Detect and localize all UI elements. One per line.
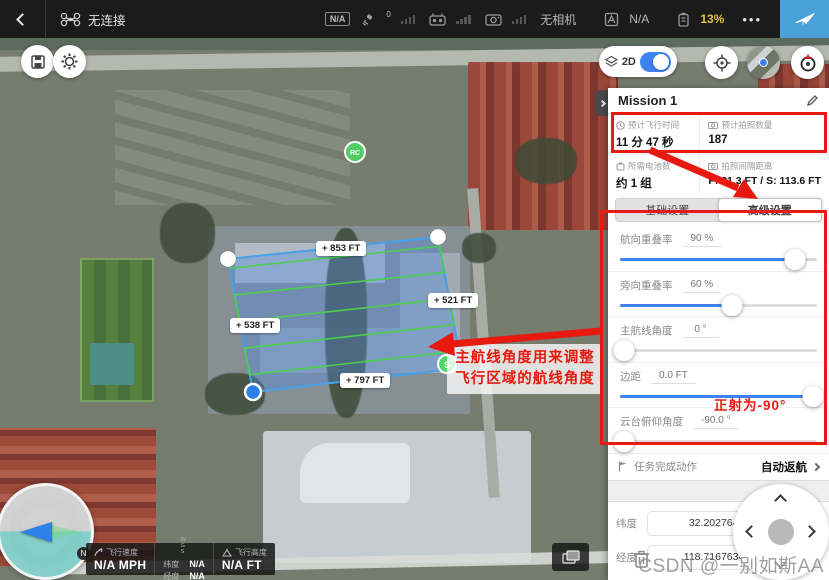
map-trees — [462, 233, 496, 263]
slider-thumb[interactable] — [785, 249, 806, 270]
battery-percentage: 13% — [700, 12, 724, 26]
stat-value: F: 21.3 FT / S: 113.6 FT — [708, 175, 821, 187]
slider-track[interactable] — [620, 440, 817, 443]
chevron-right-icon — [598, 99, 605, 106]
slider-fill — [620, 304, 732, 307]
save-mission-button[interactable] — [21, 45, 54, 78]
layers-icon — [605, 55, 618, 69]
map-2d-toggle[interactable] — [640, 52, 671, 72]
satellite-signal-bars — [401, 15, 416, 24]
battery-icon — [616, 162, 625, 171]
telemetry-coordinates: WGS 纬度N/A 经度N/A — [154, 543, 213, 575]
annotation-gimbal-note: 正射为-90° — [714, 394, 786, 414]
gps-signal-badge: N/A — [325, 12, 351, 26]
map-mode-pill: 2D — [599, 46, 677, 77]
finish-action-row[interactable]: 任务完成动作 自动返航 — [608, 454, 829, 480]
slider-track[interactable] — [620, 349, 817, 352]
map-buildings — [115, 90, 350, 205]
map-mode-label: 2D — [622, 56, 636, 68]
altitude-icon — [222, 548, 232, 557]
tab-basic-settings[interactable]: 基础设置 — [616, 199, 719, 221]
telemetry-altitude: 飞行高度 N/A FT — [213, 543, 275, 575]
setting-label: 边距 — [620, 369, 641, 384]
nudge-left-button[interactable] — [745, 525, 758, 538]
map-orientation-button[interactable] — [791, 46, 824, 79]
battery-icon — [677, 12, 690, 27]
camera-icon — [708, 162, 718, 170]
setting-side-overlap: 旁向重叠率 60 % — [608, 272, 829, 318]
mission-title: Mission 1 — [618, 93, 677, 108]
setting-label: 云台俯仰角度 — [620, 414, 683, 429]
tab-advanced-settings[interactable]: 高级设置 — [718, 198, 823, 222]
course-angle-slider[interactable] — [620, 340, 817, 361]
latitude-value: N/A — [189, 559, 205, 569]
map-trees — [205, 373, 265, 415]
airplane-icon — [794, 8, 816, 30]
chevron-left-icon — [16, 13, 29, 26]
stat-battery-count: 所需电池数 约 1 组 — [608, 154, 699, 195]
watermark: CSDN @一别如斯AA — [638, 551, 824, 578]
altitude-label: 飞行高度 — [235, 547, 267, 558]
stat-flight-time: 预计飞行时间 11 分 47 秒 — [608, 114, 699, 154]
annotation-note: 主航线角度用来调整 飞行区域的航线角度 — [447, 344, 603, 394]
mission-stats: 预计飞行时间 11 分 47 秒 预计拍照数量 187 所需电池数 约 1 组 — [608, 114, 829, 195]
finish-action-value: 自动返航 — [761, 459, 807, 475]
edit-pencil-icon[interactable] — [806, 94, 819, 107]
connection-status-text: 无连接 — [88, 10, 126, 29]
save-icon — [30, 54, 46, 70]
slider-thumb[interactable] — [722, 295, 743, 316]
setting-value[interactable]: 0 ° — [683, 323, 719, 338]
setting-course-angle: 主航线角度 0 ° — [608, 317, 829, 363]
attitude-compass-widget[interactable]: N — [0, 483, 94, 580]
panel-collapse-handle[interactable] — [595, 90, 609, 116]
longitude-label: 经度 — [163, 571, 179, 580]
setting-label: 旁向重叠率 — [620, 278, 673, 293]
telemetry-speed: 飞行速度 N/A MPH — [86, 543, 154, 575]
mission-header: Mission 1 — [608, 88, 829, 114]
stat-value: 11 分 47 秒 — [616, 134, 691, 150]
slider-thumb[interactable] — [613, 431, 634, 452]
setting-label: 航向重叠率 — [620, 232, 673, 247]
remote-controller-icon — [429, 13, 446, 26]
wgs-label: WGS — [181, 537, 188, 555]
mission-settings-button[interactable] — [53, 45, 86, 78]
stat-label: 预计飞行时间 — [628, 119, 679, 131]
toggle-knob — [653, 54, 669, 70]
edge-distance-label: + 538 FT — [230, 318, 280, 333]
annotation-note-line2: 飞行区域的航线角度 — [455, 369, 595, 390]
latitude-field-label: 纬度 — [616, 516, 640, 531]
latitude-label: 纬度 — [163, 559, 179, 570]
setting-front-overlap: 航向重叠率 90 % — [608, 226, 829, 272]
stat-label: 拍照间隔距离 — [721, 160, 772, 172]
back-button[interactable] — [0, 0, 46, 38]
map-court — [90, 343, 134, 385]
altitude-value: N/A FT — [222, 558, 267, 572]
locate-button[interactable] — [705, 46, 738, 79]
setting-gimbal-pitch: 云台俯仰角度 -90.0 ° — [608, 408, 829, 454]
aircraft-heading-arrow — [20, 522, 52, 542]
camera-icon — [708, 121, 718, 129]
stat-photo-count: 预计拍照数量 187 — [699, 114, 829, 154]
top-status-bar: 无连接 N/A 0 — [0, 0, 829, 38]
gear-icon — [61, 53, 78, 70]
stat-label: 预计拍照数量 — [721, 119, 772, 131]
takeoff-button[interactable] — [780, 0, 829, 38]
nudge-up-button[interactable] — [774, 494, 787, 507]
satellite-icon — [360, 12, 376, 26]
nudge-center-button[interactable] — [768, 519, 794, 545]
setting-label: 主航线角度 — [620, 323, 673, 338]
edge-distance-label: + 521 FT — [428, 293, 478, 308]
chevron-right-icon — [812, 462, 820, 470]
rc-signal-bars — [456, 15, 471, 24]
satellite-count: 0 — [386, 10, 390, 19]
minimap-toggle-button[interactable] — [747, 46, 780, 79]
camera-status-icon — [485, 13, 502, 26]
crosshair-icon — [713, 54, 731, 72]
setting-value[interactable]: -90.0 ° — [693, 414, 739, 429]
map-building — [300, 443, 410, 503]
speed-icon — [94, 548, 103, 557]
flight-mode-icon — [604, 12, 619, 27]
settings-tabs: 基础设置 高级设置 — [615, 198, 822, 222]
speed-value: N/A MPH — [94, 558, 146, 572]
stat-value: 约 1 组 — [616, 175, 691, 191]
speed-label: 飞行速度 — [106, 547, 138, 558]
setting-value[interactable]: 90 % — [683, 232, 722, 247]
finish-flag-icon — [618, 461, 628, 472]
map-trees — [515, 138, 577, 184]
slider-thumb[interactable] — [803, 386, 824, 407]
camera-status-text: 无相机 — [540, 11, 576, 28]
stat-photo-interval: 拍照间隔距离 F: 21.3 FT / S: 113.6 FT — [699, 154, 829, 195]
app-screen: RC S + 853 FT + 521 FT + 538 FT + 797 FT — [0, 0, 829, 580]
edge-distance-label: + 853 FT — [316, 241, 366, 256]
annotation-note-line1: 主航线角度用来调整 — [455, 348, 595, 369]
flight-mode-value: N/A — [629, 12, 649, 26]
nudge-right-button[interactable] — [803, 525, 816, 538]
map-type-button[interactable] — [552, 543, 589, 571]
compass-mode-icon — [798, 53, 818, 73]
longitude-value: N/A — [189, 571, 205, 580]
map-trees — [160, 203, 215, 263]
status-icons: N/A 0 — [325, 11, 725, 28]
telemetry-bar: 飞行速度 N/A MPH WGS 纬度N/A 经度N/A 飞行高度 N/A FT — [86, 543, 275, 575]
stat-value: 187 — [708, 134, 821, 146]
finish-action-label: 任务完成动作 — [634, 459, 697, 474]
setting-value[interactable]: 60 % — [683, 278, 722, 293]
drone-icon — [60, 12, 81, 27]
camera-signal-bars — [512, 15, 527, 24]
setting-value[interactable]: 0.0 FT — [651, 369, 696, 384]
aircraft-connection-status: 无连接 — [46, 10, 140, 29]
clock-icon — [616, 121, 625, 130]
more-options-button[interactable]: ••• — [724, 12, 780, 27]
front-overlap-slider[interactable] — [620, 249, 817, 270]
edge-distance-label: + 797 FT — [340, 373, 390, 388]
stat-label: 所需电池数 — [628, 160, 671, 172]
map-trees — [325, 228, 367, 418]
map-layers-icon — [562, 550, 580, 565]
slider-fill — [620, 258, 795, 261]
slider-thumb[interactable] — [613, 340, 634, 361]
side-overlap-slider[interactable] — [620, 295, 817, 316]
gimbal-pitch-slider[interactable] — [620, 431, 817, 452]
